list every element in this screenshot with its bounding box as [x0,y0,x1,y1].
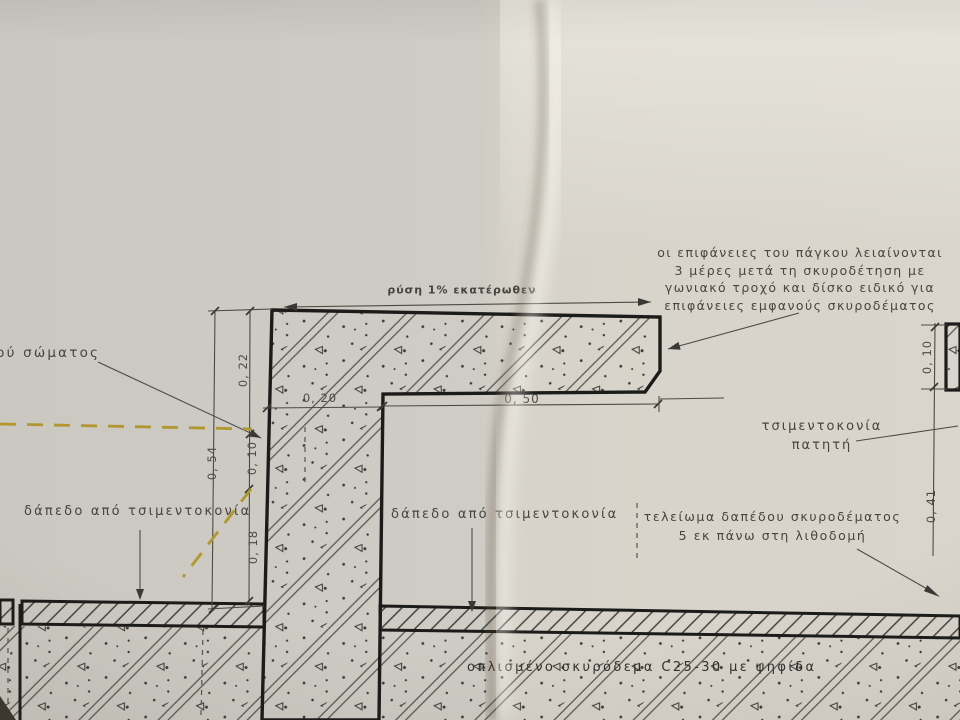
screed-label-line: πατητή [747,436,897,455]
surface-note-line: γωνιακό τροχό και δίσκο ειδικό για [640,279,960,297]
ground-slab-left [0,626,262,720]
screed-label-line: τσιμεντοκονία [747,417,897,436]
surface-finishing-note: οι επιφάνειες του πάγκου λειαίνονται 3 μ… [640,244,960,314]
dim-right-top: 0, 10 [920,340,934,374]
floor-label-center: δάπεδο από τσιμεντοκονία [391,507,618,522]
photographed-blueprint: { "labels": { "slope_note": "ρύση 1% εκα… [0,0,960,720]
floor-finish-line: 5 εκ πάνω στη λιθοδομή [635,526,910,545]
concrete-note: οπλισμένο σκυρόδεμα C25-30 με ψηφίδα [467,660,816,675]
floor-screed-left-a [0,600,13,624]
screed-label: τσιμεντοκονία πατητή [747,417,897,455]
left-partial-label: κού σώματος [0,345,100,361]
surface-note-line: επιφάνειες εμφανούς σκυροδέματος [640,297,960,315]
dim-wall-width: 0, 20 [303,391,337,405]
technical-drawing [0,0,960,720]
floor-finish-line: τελείωμα δαπέδου σκυροδέματος [635,507,910,526]
dim-bench-depth: 0, 50 [504,392,540,406]
dim-base-height: 0, 18 [246,530,260,564]
floor-screed-left-b [22,601,264,627]
dim-slab-thickness: 0, 22 [236,353,250,387]
floor-finish-note: τελείωμα δαπέδου σκυροδέματος 5 εκ πάνω … [635,507,910,545]
surface-note-line: οι επιφάνειες του πάγκου λειαίνονται [640,244,960,262]
surface-note-line: 3 μέρες μετά τη σκυροδέτηση με [640,262,960,280]
dim-mid-height: 0, 10 [245,441,259,475]
floor-label-left: δάπεδο από τσιμεντοκονία [24,504,251,519]
slope-note: ρύση 1% εκατέρωθεν [387,284,536,297]
ground-slab-right [378,630,960,720]
right-edge-element [946,324,960,390]
dim-total-height: 0, 54 [205,446,219,480]
dim-right-height: 0, 41 [924,489,938,523]
